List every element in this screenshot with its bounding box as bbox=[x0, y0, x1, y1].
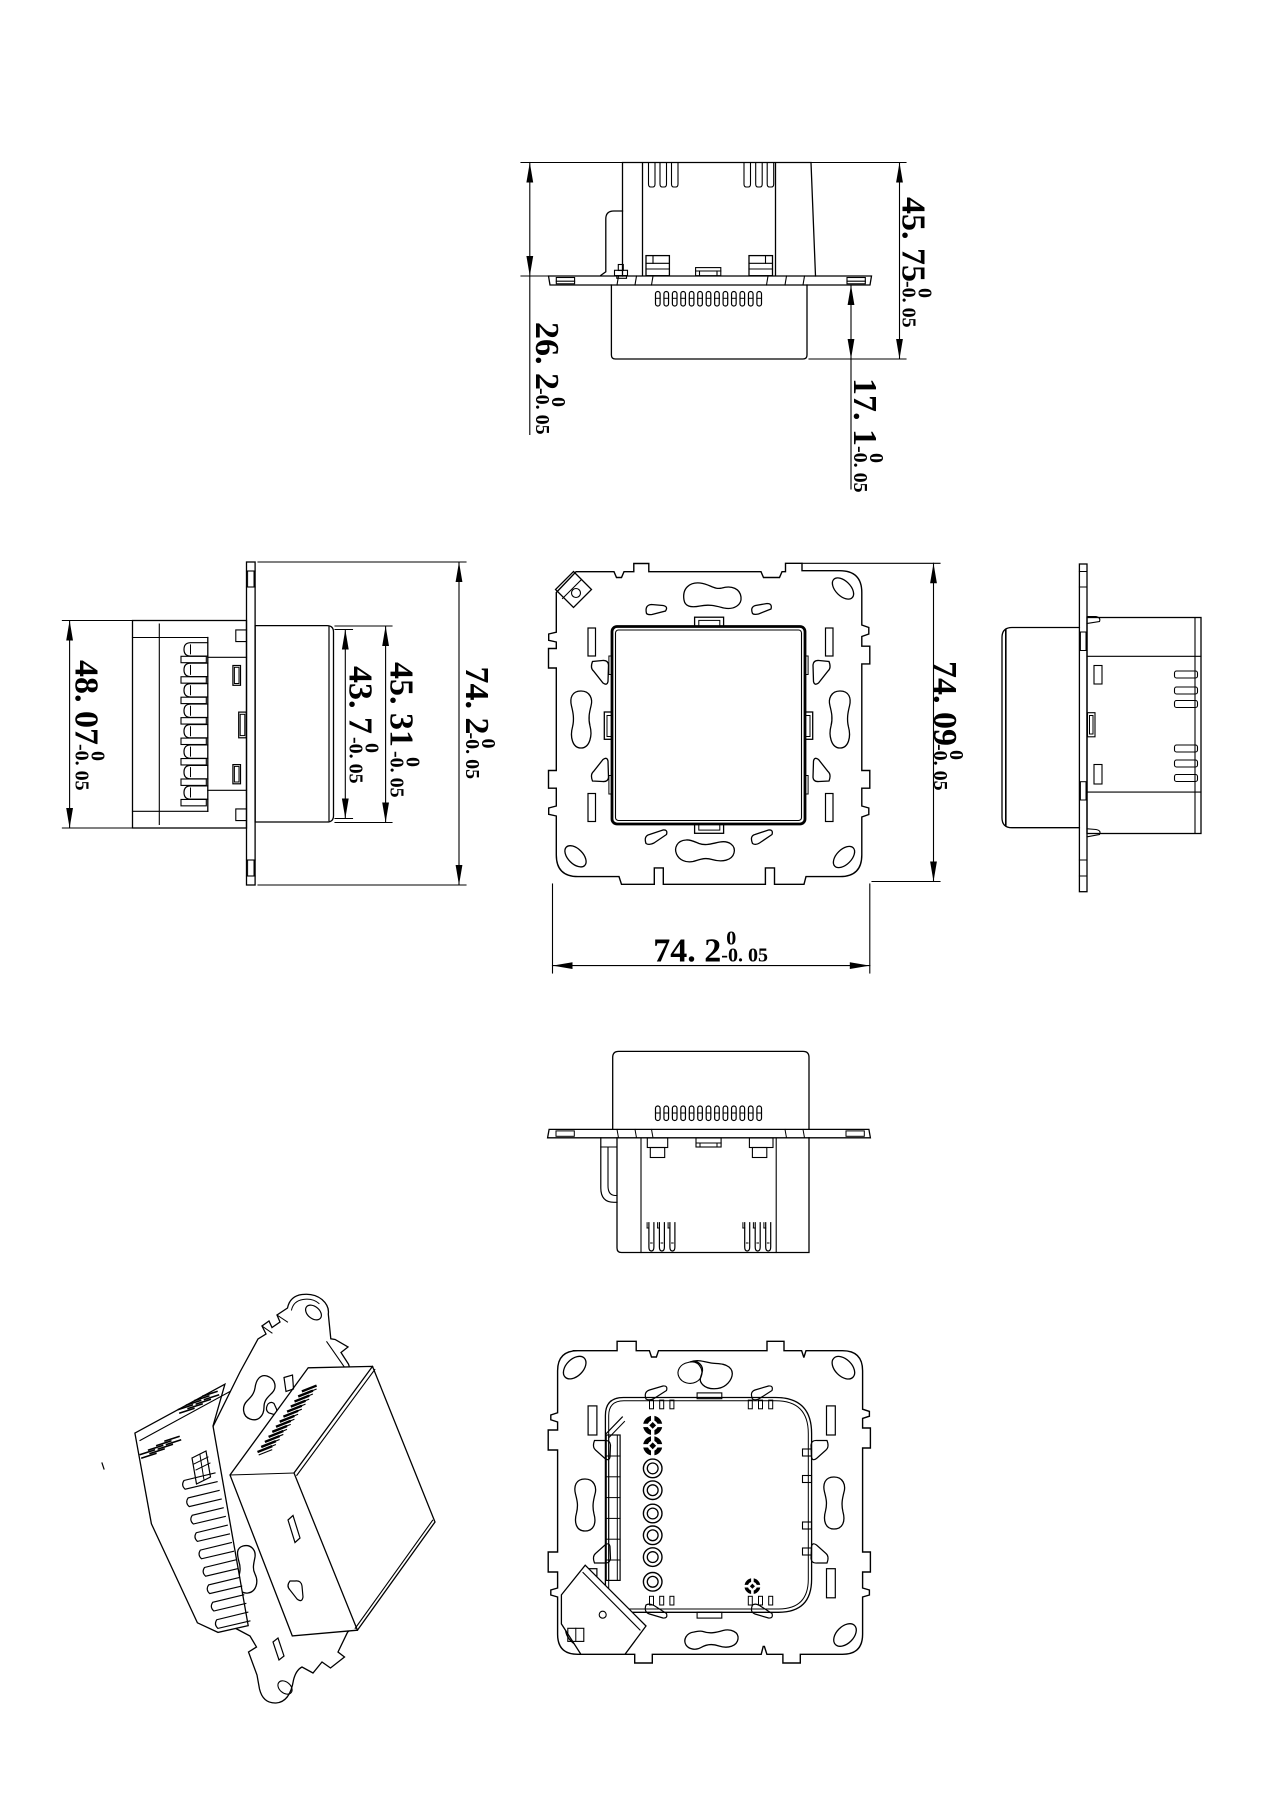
svg-text:0: 0 bbox=[726, 927, 736, 949]
svg-text:48. 07: 48. 07 bbox=[68, 660, 105, 745]
svg-text:17. 1: 17. 1 bbox=[846, 378, 883, 446]
svg-text:0: 0 bbox=[361, 743, 383, 753]
svg-text:45. 75: 45. 75 bbox=[895, 197, 932, 282]
svg-text:74. 2: 74. 2 bbox=[458, 667, 495, 735]
svg-text:0: 0 bbox=[547, 397, 569, 407]
svg-text:0: 0 bbox=[914, 288, 936, 298]
svg-text:45. 31: 45. 31 bbox=[383, 662, 420, 747]
svg-text:0: 0 bbox=[87, 751, 109, 761]
svg-text:74. 09: 74. 09 bbox=[926, 661, 963, 746]
svg-text:0: 0 bbox=[477, 739, 499, 749]
svg-text:-0. 05: -0. 05 bbox=[531, 388, 553, 435]
svg-text:0: 0 bbox=[945, 750, 967, 760]
svg-text:0: 0 bbox=[865, 453, 887, 463]
svg-text:43. 7: 43. 7 bbox=[342, 666, 379, 734]
svg-text:0: 0 bbox=[402, 757, 424, 767]
svg-text:26. 2: 26. 2 bbox=[528, 322, 565, 390]
svg-text:74. 2: 74. 2 bbox=[653, 932, 721, 969]
